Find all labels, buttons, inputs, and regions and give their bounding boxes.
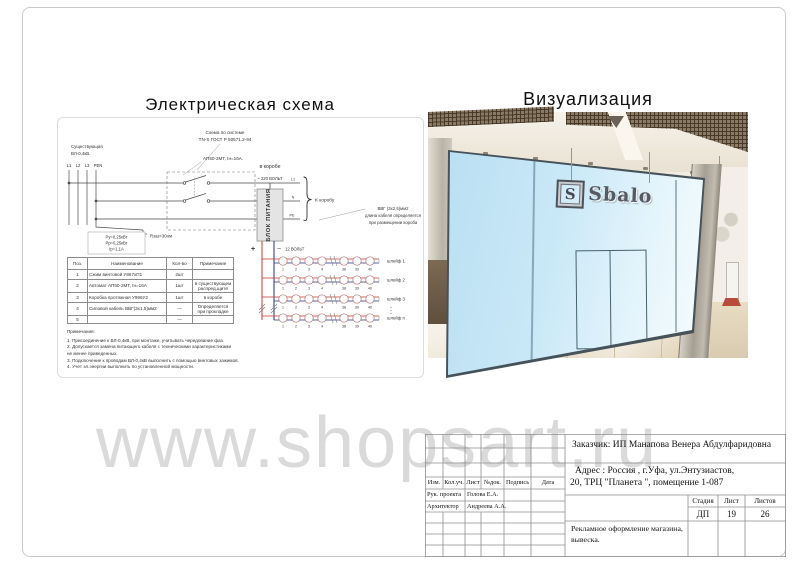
sign-rod bbox=[649, 152, 650, 183]
svg-text:40: 40 bbox=[368, 268, 372, 272]
svg-text:L1: L1 bbox=[291, 178, 295, 182]
store-sign: S Sbalo bbox=[555, 178, 672, 223]
table-row: 1 Сжим винтовой У867хП1 2шт bbox=[68, 270, 234, 280]
svg-text:длина кабеля определяется: длина кабеля определяется bbox=[365, 213, 422, 218]
svg-text:3: 3 bbox=[308, 268, 310, 272]
svg-text:2: 2 bbox=[295, 287, 297, 291]
recessed-light bbox=[588, 162, 593, 165]
output-voltage-label: 12 ВОЛЬТ bbox=[285, 247, 305, 252]
table-row: 2 Автомат АП50-2МТ, Iн=16А 1шт в существ… bbox=[68, 280, 234, 293]
customer: Заказчик: ИП Манапова Венера Абдулфаридо… bbox=[572, 440, 771, 450]
svg-text:Схема по системе: Схема по системе bbox=[206, 130, 245, 135]
led-chain: 1 2 3 4 38 39 40 шлейф 2 bbox=[262, 275, 405, 291]
visualization-photo: S Sbalo bbox=[428, 112, 748, 358]
svg-text:4: 4 bbox=[321, 268, 323, 272]
entrance-door bbox=[575, 250, 647, 350]
role-architect: Архитектор bbox=[427, 501, 459, 512]
col-qty: Кол-во bbox=[167, 258, 193, 270]
svg-text:40: 40 bbox=[368, 287, 372, 291]
schematic-notes: Примечания: 1. Присоединение к ВЛ-0,4кВ,… bbox=[67, 329, 397, 371]
sign-logo: S bbox=[556, 180, 585, 209]
svg-text:38: 38 bbox=[342, 325, 346, 329]
led-chain: 1 2 3 4 38 39 40 шлейф 3 bbox=[262, 294, 405, 310]
col-podpis: Подпись bbox=[504, 477, 531, 489]
cable-note: ВВГ (3х2,5)мм2 длина кабеля определяется… bbox=[365, 206, 422, 225]
chain-label: шлейф 1 bbox=[387, 259, 405, 264]
brace bbox=[304, 177, 312, 221]
table-row: 4 Силовой кабель ВВГ(3х1,5)мм2 — Определ… bbox=[68, 303, 234, 316]
glass-mullion bbox=[675, 180, 677, 332]
ceiling-beam bbox=[578, 112, 673, 160]
svg-text:39: 39 bbox=[355, 325, 359, 329]
to-duct-label: К коробу bbox=[315, 198, 335, 204]
svg-text:40: 40 bbox=[368, 306, 372, 310]
svg-text:3: 3 bbox=[308, 287, 310, 291]
table-row: 5 — bbox=[68, 316, 234, 324]
svg-text:38: 38 bbox=[342, 306, 346, 310]
components-table: Поз. Наименование Кол-во Примечание 1 Сж… bbox=[67, 257, 234, 324]
svg-text:L3: L3 bbox=[85, 163, 90, 168]
recessed-light bbox=[533, 157, 538, 160]
drawing-sheet: www.shopsart.ru Электрическая схема Визу… bbox=[0, 0, 794, 561]
led-chain: 1 2 3 4 38 39 40 шлейф 1 bbox=[262, 256, 405, 272]
sheet-number: 19 bbox=[718, 507, 745, 521]
col-pos: Поз. bbox=[68, 258, 88, 270]
col-ndok: №док. bbox=[481, 477, 504, 489]
existing-line-label: Существующая ВЛ-0,4кВ. bbox=[71, 144, 103, 156]
subject-line2: вывеска. bbox=[571, 535, 600, 544]
system-note: Схема по системе TN-S ГОСТ Р 50571.2-94 bbox=[199, 130, 252, 142]
name-architect: Андреева А.А. bbox=[467, 501, 506, 512]
svg-text:39: 39 bbox=[355, 268, 359, 272]
svg-text:4: 4 bbox=[321, 306, 323, 310]
svg-text:3: 3 bbox=[308, 325, 310, 329]
sign-brand-text: Sbalo bbox=[588, 183, 653, 208]
left-wall bbox=[428, 260, 448, 324]
svg-text:PEN: PEN bbox=[94, 163, 103, 168]
col-data: Дата bbox=[531, 477, 565, 489]
svg-text:Pу=0,25кВт: Pу=0,25кВт bbox=[106, 235, 128, 240]
col-list: Лист bbox=[465, 477, 481, 489]
breaker-label: АП50-2МТ, Iн=16А. bbox=[203, 156, 243, 161]
chain-ellipsis bbox=[391, 307, 392, 314]
address-line2: 20, ТРЦ "Планета ", помещение 1-087 bbox=[570, 478, 723, 488]
svg-text:38: 38 bbox=[342, 268, 346, 272]
col-koluch: Кол.уч. bbox=[443, 477, 465, 489]
dc-buses bbox=[259, 241, 277, 320]
svg-text:2: 2 bbox=[295, 325, 297, 329]
svg-text:1: 1 bbox=[282, 306, 284, 310]
svg-text:38: 38 bbox=[342, 287, 346, 291]
sheet-label: Лист bbox=[718, 495, 745, 507]
output-labels: L1 N PE bbox=[289, 178, 295, 218]
svg-text:PE: PE bbox=[289, 214, 295, 218]
svg-text:Pр=0,25кВт: Pр=0,25кВт bbox=[105, 241, 127, 246]
chain-label: шлейф 2 bbox=[387, 278, 405, 283]
note-line: не менее приведенных. bbox=[67, 351, 397, 358]
led-chain: 1 2 3 4 38 39 40 шлейф n bbox=[262, 313, 405, 329]
supply-buses bbox=[69, 170, 96, 225]
visualization-title: Визуализация bbox=[428, 89, 748, 110]
notes-title: Примечания: bbox=[67, 329, 397, 336]
psu-label: БЛОК ПИТАНИЯ bbox=[266, 188, 272, 241]
role-project-lead: Рук. проекта bbox=[427, 489, 461, 501]
svg-text:4: 4 bbox=[321, 287, 323, 291]
svg-text:2: 2 bbox=[295, 306, 297, 310]
svg-text:1: 1 bbox=[282, 268, 284, 272]
minus-terminal: − bbox=[277, 246, 281, 253]
stage-value: ДП bbox=[688, 507, 718, 521]
svg-text:ВВГ (3х2,5)мм2: ВВГ (3х2,5)мм2 bbox=[378, 206, 410, 211]
svg-text:ВЛ-0,4кВ.: ВЛ-0,4кВ. bbox=[71, 151, 90, 156]
svg-text:1: 1 bbox=[282, 325, 284, 329]
input-voltage-label: ~ 220 ВОЛЬТ bbox=[257, 176, 283, 181]
recessed-light bbox=[643, 167, 648, 170]
subject-line1: Рекламное оформление магазина, bbox=[571, 524, 683, 533]
stage-label: Стадия bbox=[688, 495, 718, 507]
note-line: 1. Присоединение к ВЛ-0,4кВ, при монтаже… bbox=[67, 338, 397, 345]
col-note: Примечание bbox=[193, 258, 234, 270]
svg-text:Существующая: Существующая bbox=[71, 144, 103, 149]
svg-text:TN-S ГОСТ Р 50571.2-94: TN-S ГОСТ Р 50571.2-94 bbox=[199, 137, 252, 142]
sheets-total: 26 bbox=[745, 507, 785, 521]
note-line: 2. Допускается замена питающего кабеля с… bbox=[67, 344, 397, 351]
schematic-title: Электрическая схема bbox=[57, 95, 423, 115]
svg-text:3: 3 bbox=[308, 306, 310, 310]
svg-text:N: N bbox=[292, 196, 295, 200]
col-name: Наименование bbox=[88, 258, 167, 270]
chain-label: шлейф 3 bbox=[387, 297, 405, 302]
bus-labels: L1 L2 L3 PEN bbox=[67, 163, 103, 168]
table-header-row: Поз. Наименование Кол-во Примечание bbox=[68, 258, 234, 270]
plus-terminal: + bbox=[251, 246, 255, 253]
svg-text:при размещении короба: при размещении короба bbox=[369, 220, 418, 225]
svg-text:4: 4 bbox=[321, 325, 323, 329]
svg-text:L1: L1 bbox=[67, 163, 72, 168]
address-line1: Адрес : Россия , г.Уфа, ул.Энтузиастов, bbox=[575, 466, 734, 476]
col-izm: Изм. bbox=[425, 477, 443, 489]
cable-note-leader bbox=[319, 209, 365, 220]
svg-text:1: 1 bbox=[282, 287, 284, 291]
corridor-floor bbox=[710, 302, 748, 358]
sign-rod bbox=[719, 156, 720, 180]
name-project-lead: Голова Е.А. bbox=[467, 489, 498, 501]
table-row: 3 Коробка протяжная У996У2 1шт в коробе bbox=[68, 293, 234, 303]
door-divider bbox=[609, 251, 611, 348]
svg-text:40: 40 bbox=[368, 325, 372, 329]
sheets-label: Листов bbox=[745, 495, 785, 507]
ground-label: Rзаз<30ом bbox=[150, 234, 172, 239]
glass-mullion bbox=[530, 154, 535, 369]
svg-text:39: 39 bbox=[355, 287, 359, 291]
sign-stand bbox=[726, 262, 739, 302]
svg-text:L2: L2 bbox=[76, 163, 81, 168]
svg-text:39: 39 bbox=[355, 306, 359, 310]
duct-label: в коробе bbox=[260, 164, 281, 170]
note-line: 4. Учет эл.энергии выполнить по установл… bbox=[67, 364, 397, 371]
svg-text:2: 2 bbox=[295, 268, 297, 272]
svg-text:Iр=1,1А: Iр=1,1А bbox=[109, 247, 124, 252]
chain-label: шлейф n bbox=[387, 316, 405, 321]
